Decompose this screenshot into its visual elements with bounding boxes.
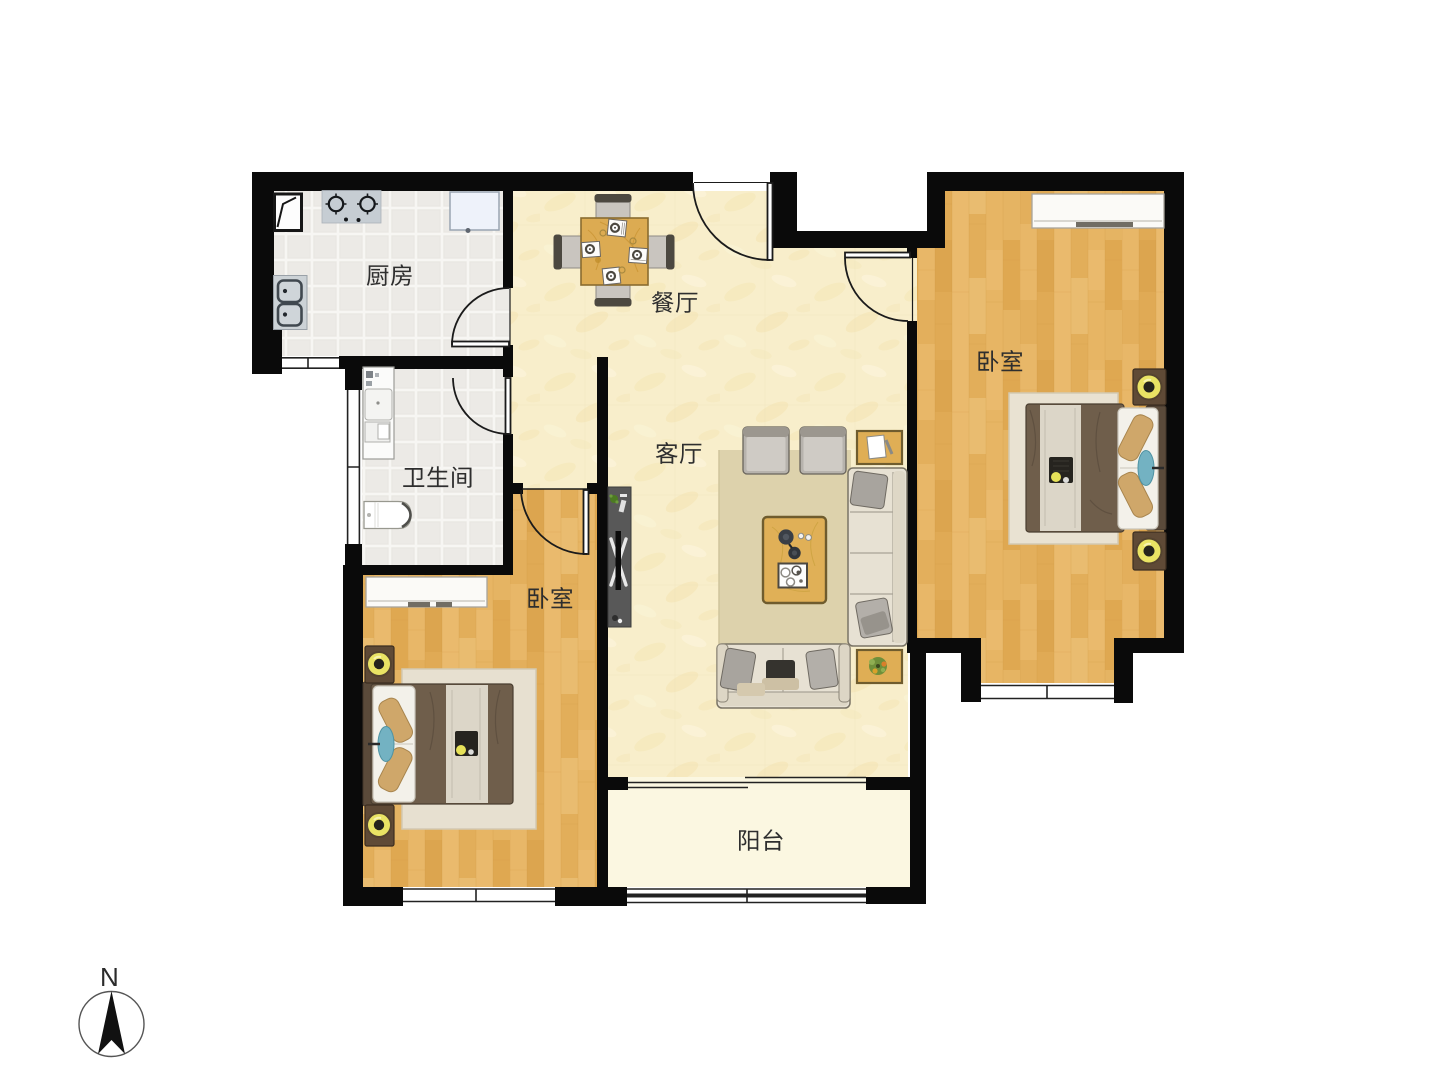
svg-text:N: N <box>100 962 119 992</box>
